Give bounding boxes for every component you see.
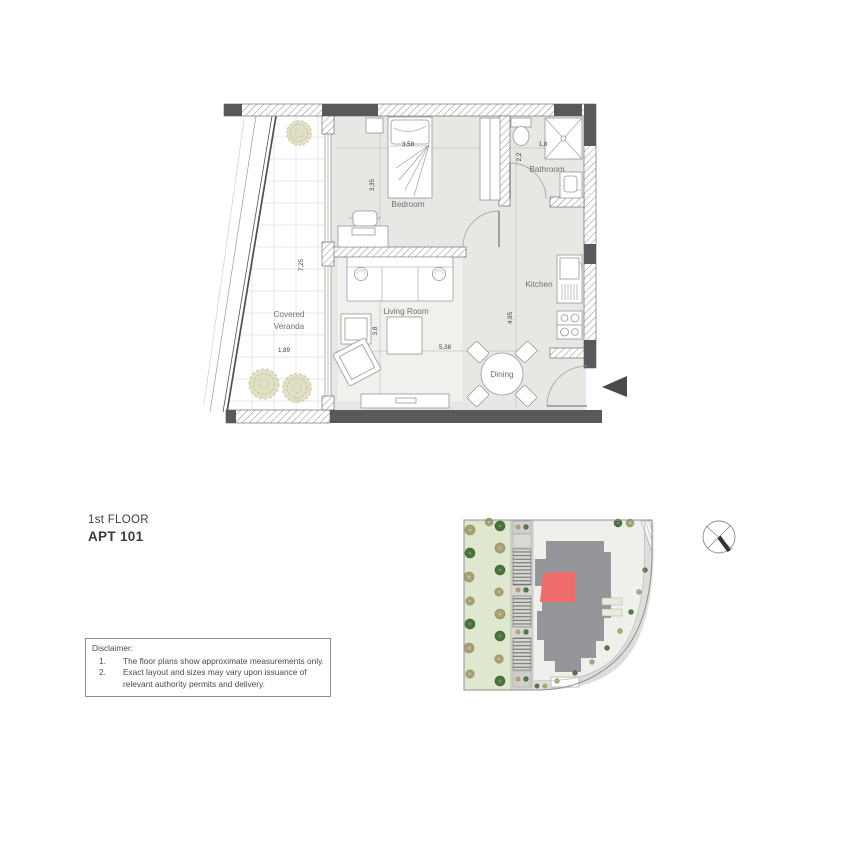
dim-living-width: 5,38 — [439, 344, 452, 351]
dim-bathroom-width: 1,8 — [539, 141, 548, 148]
disclaimer-item-number: 2. — [92, 667, 123, 690]
wall-top — [224, 104, 596, 116]
column — [224, 104, 242, 116]
wall-entrance-stub — [550, 348, 584, 358]
label-covered-veranda-2: Veranda — [274, 322, 305, 331]
stove — [557, 311, 582, 339]
coffee-table — [387, 317, 422, 354]
plan-sheet: Covered Veranda 7,25 1,89 — [0, 0, 850, 850]
dim-veranda-width: 1,89 — [278, 347, 291, 354]
building-balcony — [602, 609, 622, 616]
wall-window-pier-bottom — [322, 396, 334, 410]
wall-bathroom-south — [550, 197, 584, 207]
wall-bottom-veranda — [226, 410, 330, 423]
floor-label: 1st FLOOR — [88, 514, 149, 526]
apartment-label: APT 101 — [88, 529, 149, 544]
wall-bedroom-bathroom — [499, 116, 510, 206]
entrance-arrow-icon — [602, 376, 627, 397]
plan-header: 1st FLOOR APT 101 — [88, 514, 149, 544]
label-covered-veranda: Covered — [274, 310, 305, 319]
unit-highlight — [540, 572, 575, 603]
dim-bedroom-width: 3,58 — [402, 141, 415, 148]
disclaimer-item: 2. Exact layout and sizes may vary upon … — [92, 667, 324, 690]
column — [226, 410, 236, 423]
bed — [388, 117, 432, 198]
bathroom-sink — [560, 172, 582, 198]
tree-icon — [287, 121, 312, 146]
armchair-cushion — [345, 318, 367, 340]
north-compass-icon — [703, 521, 735, 553]
tree-icon — [283, 374, 312, 403]
wardrobe — [480, 118, 500, 200]
disclaimer-item: 1. The floor plans show approximate meas… — [92, 656, 324, 668]
dim-kitchen-length: 4,95 — [507, 311, 514, 324]
dim-bedroom-depth: 3,35 — [369, 178, 376, 191]
tree-icon — [249, 369, 279, 399]
column — [584, 244, 596, 264]
toilet — [511, 118, 531, 146]
plan-canvas: Covered Veranda 7,25 1,89 — [0, 0, 850, 850]
label-dining: Dining — [490, 370, 514, 379]
shower — [545, 118, 582, 159]
site-plan — [464, 518, 652, 690]
wall-bedroom-south — [330, 247, 466, 257]
disclaimer-item-number: 1. — [92, 656, 123, 668]
column — [554, 104, 582, 116]
wall-window-pier-top — [322, 116, 334, 134]
label-kitchen: Kitchen — [525, 280, 553, 289]
disclaimer-box: Disclaimer: 1. The floor plans show appr… — [85, 638, 331, 697]
tv-console — [361, 394, 449, 408]
floor-plan: Covered Veranda 7,25 1,89 — [204, 104, 627, 423]
building-balcony — [602, 598, 622, 605]
sofa — [347, 257, 453, 301]
label-bathroom: Bathroom — [529, 165, 565, 174]
label-living-room: Living Room — [383, 307, 429, 316]
disclaimer-title: Disclaimer: — [92, 643, 324, 655]
wall-bottom — [330, 410, 602, 423]
wall-window-pier-mid — [322, 242, 334, 266]
room-covered-veranda: Covered Veranda 7,25 1,89 — [204, 116, 330, 412]
desk-chair — [353, 211, 377, 226]
column — [584, 340, 596, 368]
nightstand — [366, 118, 383, 133]
site-parking — [511, 520, 533, 690]
column — [322, 104, 378, 116]
column — [584, 104, 596, 146]
label-bedroom: Bedroom — [391, 200, 424, 209]
dim-veranda-length: 7,25 — [298, 258, 305, 271]
wall-right — [584, 116, 596, 368]
dim-living-depth: 3,8 — [372, 326, 379, 335]
dim-bathroom-depth: 2,2 — [516, 152, 523, 161]
kitchen-sink-counter — [557, 255, 582, 303]
disclaimer-item-text: The floor plans show approximate measure… — [123, 656, 324, 668]
disclaimer-item-text: Exact layout and sizes may vary upon iss… — [123, 667, 324, 690]
